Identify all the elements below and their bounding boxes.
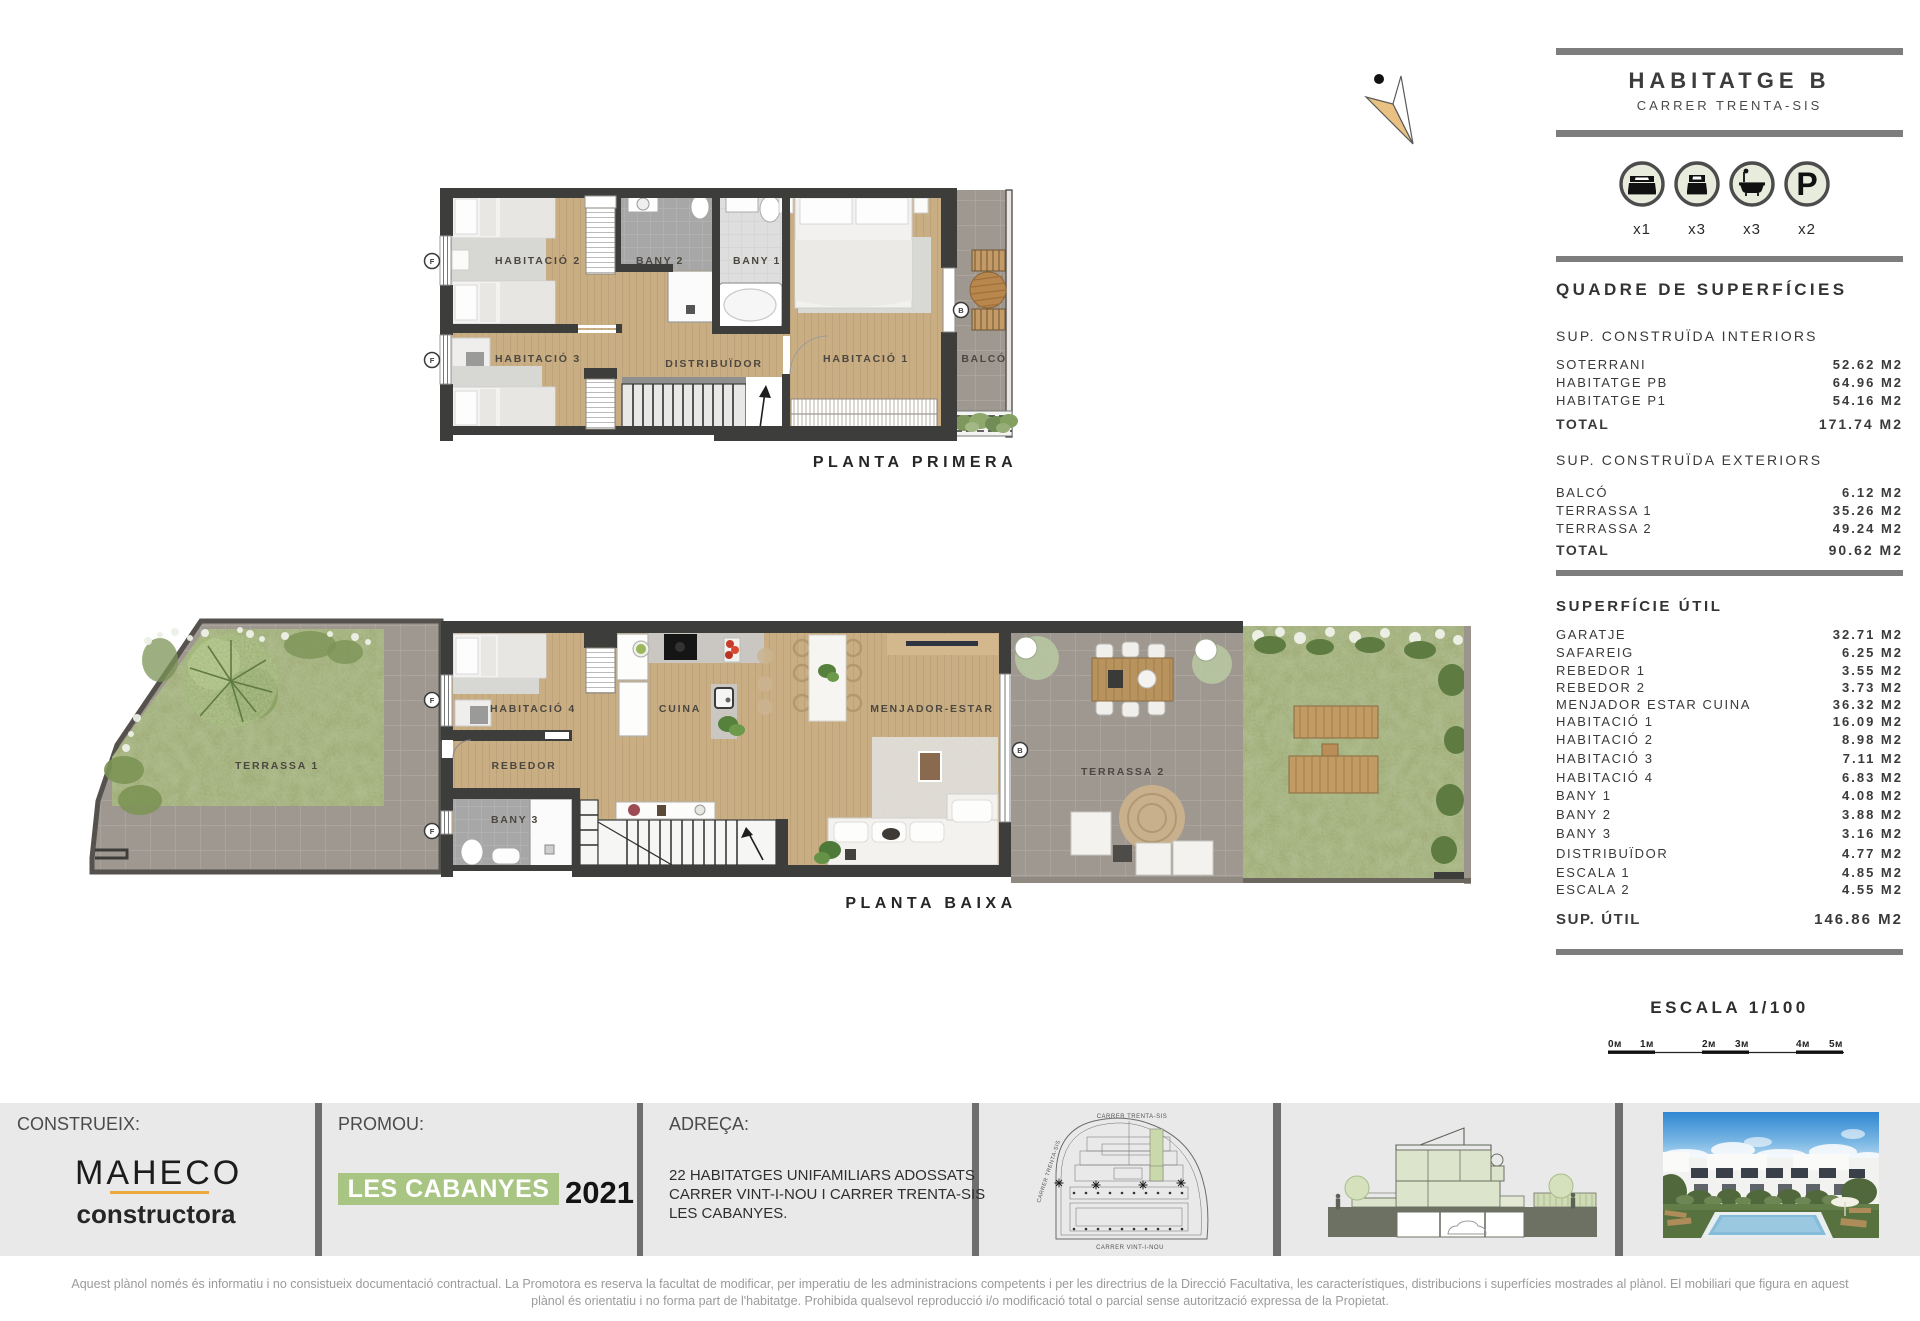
svg-text:CARRER VINT-I-NOU: CARRER VINT-I-NOU (1096, 1245, 1164, 1251)
svg-text:x3: x3 (1688, 221, 1706, 238)
svg-text:HABITACIÓ 4: HABITACIÓ 4 (490, 702, 576, 715)
svg-text:F: F (430, 356, 435, 365)
svg-text:P: P (1796, 166, 1817, 202)
svg-text:HABITACIÓ 3: HABITACIÓ 3 (495, 352, 581, 365)
svg-text:F: F (430, 696, 435, 705)
svg-text:x1: x1 (1633, 221, 1651, 238)
svg-text:BANY 1: BANY 1 (733, 255, 781, 267)
svg-text:2м: 2м (1702, 1039, 1716, 1050)
svg-text:3м: 3м (1735, 1039, 1749, 1050)
svg-text:1м: 1м (1640, 1039, 1654, 1050)
svg-text:BANY 2: BANY 2 (636, 255, 684, 267)
svg-text:TERRASSA 2: TERRASSA 2 (1081, 766, 1165, 778)
svg-text:HABITACIÓ 1: HABITACIÓ 1 (823, 352, 909, 365)
svg-text:0м: 0м (1608, 1039, 1622, 1050)
svg-text:x3: x3 (1743, 221, 1761, 238)
svg-text:F: F (430, 257, 435, 266)
svg-text:TERRASSA 1: TERRASSA 1 (235, 760, 319, 772)
svg-text:CUINA: CUINA (659, 703, 701, 715)
svg-text:5м: 5м (1829, 1039, 1843, 1050)
svg-text:DISTRIBUÏDOR: DISTRIBUÏDOR (665, 357, 762, 370)
svg-text:B: B (1017, 746, 1023, 755)
svg-text:MENJADOR-ESTAR: MENJADOR-ESTAR (870, 703, 994, 715)
svg-text:PLANTA PRIMERA: PLANTA PRIMERA (813, 454, 1017, 471)
svg-text:B: B (958, 306, 964, 315)
svg-text:BANY 3: BANY 3 (491, 814, 539, 826)
svg-text:F: F (430, 827, 435, 836)
svg-text:REBEDOR: REBEDOR (491, 760, 556, 772)
svg-text:HABITACIÓ 2: HABITACIÓ 2 (495, 254, 581, 267)
svg-text:x2: x2 (1798, 221, 1816, 238)
svg-text:PLANTA BAIXA: PLANTA BAIXA (845, 895, 1016, 912)
svg-text:4м: 4м (1796, 1039, 1810, 1050)
svg-text:BALCÓ: BALCÓ (961, 352, 1006, 365)
svg-text:CARRER TRENTA-SIS: CARRER TRENTA-SIS (1036, 1140, 1062, 1204)
